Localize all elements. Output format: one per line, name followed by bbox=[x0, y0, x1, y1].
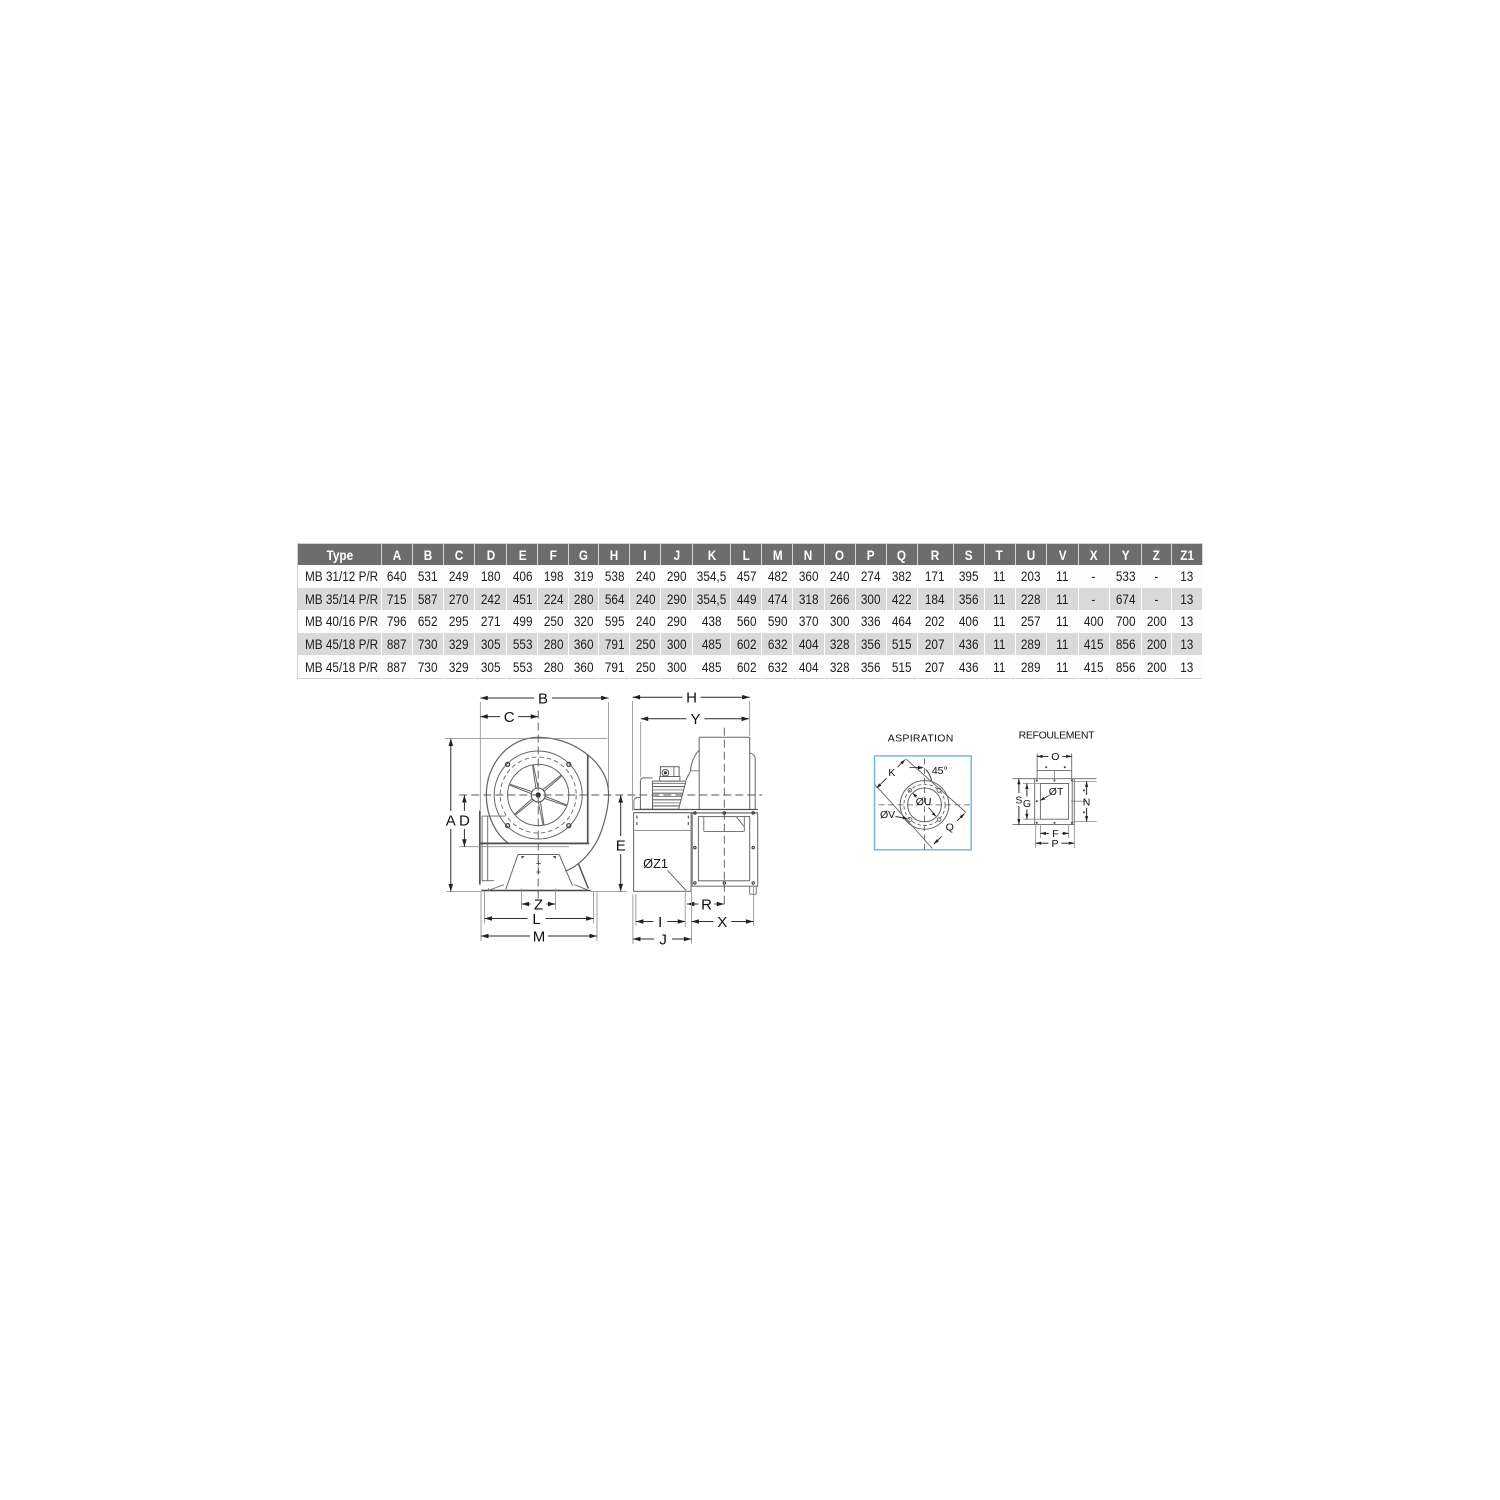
svg-text:C: C bbox=[504, 709, 515, 726]
svg-text:N: N bbox=[1083, 796, 1091, 808]
svg-text:ØU: ØU bbox=[916, 796, 932, 808]
svg-text:G: G bbox=[1023, 798, 1031, 810]
svg-text:R: R bbox=[701, 896, 712, 913]
svg-text:45°: 45° bbox=[932, 765, 948, 777]
svg-text:Y: Y bbox=[690, 711, 700, 728]
svg-text:ØV: ØV bbox=[880, 809, 895, 821]
svg-text:O: O bbox=[1051, 751, 1059, 763]
svg-text:D: D bbox=[459, 812, 470, 829]
svg-text:ASPIRATION: ASPIRATION bbox=[888, 733, 954, 745]
svg-text:ØT: ØT bbox=[1049, 786, 1064, 798]
svg-text:J: J bbox=[659, 931, 667, 948]
svg-text:ØZ1: ØZ1 bbox=[643, 856, 668, 871]
svg-text:I: I bbox=[658, 914, 662, 931]
svg-text:X: X bbox=[717, 914, 727, 931]
svg-text:E: E bbox=[616, 837, 626, 854]
svg-text:A: A bbox=[446, 812, 456, 829]
svg-text:K: K bbox=[888, 767, 895, 779]
svg-text:M: M bbox=[533, 928, 546, 945]
svg-text:Q: Q bbox=[946, 821, 954, 833]
svg-text:B: B bbox=[538, 690, 548, 707]
svg-text:REFOULEMENT: REFOULEMENT bbox=[1019, 730, 1095, 742]
svg-text:S: S bbox=[1015, 794, 1022, 806]
svg-text:P: P bbox=[1051, 838, 1058, 850]
svg-text:H: H bbox=[686, 690, 697, 707]
svg-text:L: L bbox=[532, 911, 540, 928]
